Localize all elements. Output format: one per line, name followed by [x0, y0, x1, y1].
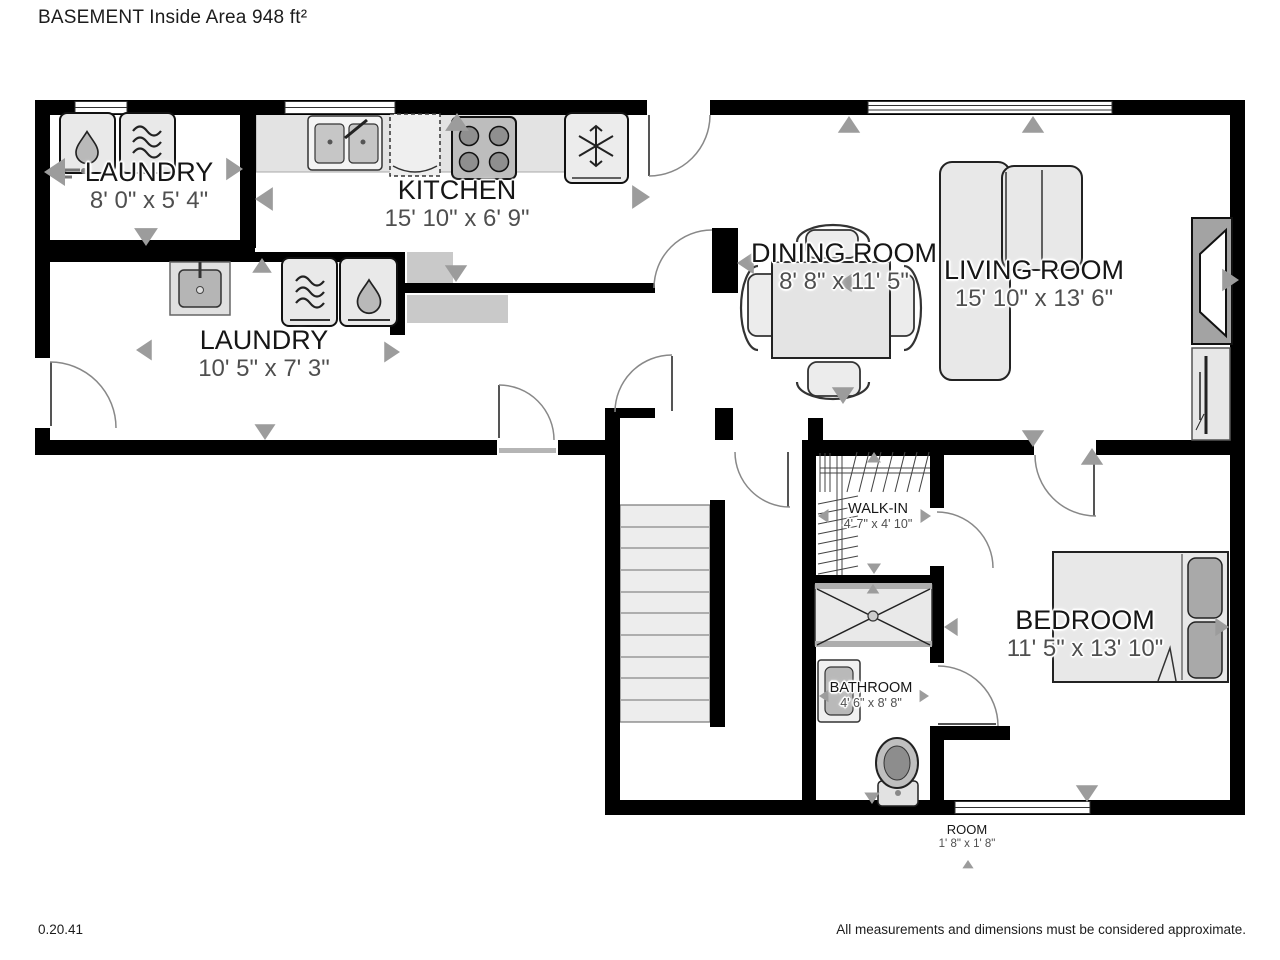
dishwasher-icon: [390, 114, 440, 176]
room-dims: 11' 5" x 13' 10": [1007, 635, 1164, 662]
room-label-bathroom: BATHROOM 4' 6" x 8' 8": [830, 681, 913, 711]
room-dims: 8' 8" x 11' 5": [751, 268, 937, 295]
room-dims: 15' 10" x 6' 9": [385, 205, 530, 232]
stairs: [620, 505, 710, 722]
kitchen-sink-icon: [308, 116, 382, 170]
room-name: BEDROOM: [1007, 606, 1164, 635]
room-name: WALK-IN: [844, 502, 913, 517]
laundry-sink-icon: [170, 262, 230, 315]
room-name: KITCHEN: [385, 176, 530, 205]
room-name: LIVING ROOM: [944, 256, 1124, 285]
tv-icon: [1192, 348, 1230, 440]
room-dims: 10' 5" x 7' 3": [198, 355, 330, 382]
room-dims: 4' 6" x 8' 8": [830, 696, 913, 711]
disclaimer-text: All measurements and dimensions must be …: [836, 922, 1246, 937]
room-label-bedroom: BEDROOM 11' 5" x 13' 10": [1007, 606, 1164, 662]
room-label-room: ROOM 1' 8" x 1' 8": [939, 823, 996, 851]
room-name: BATHROOM: [830, 681, 913, 696]
room-dims: 15' 10" x 13' 6": [944, 285, 1124, 312]
room-label-kitchen: KITCHEN 15' 10" x 6' 9": [385, 176, 530, 232]
room-dims: 4' 7" x 4' 10": [844, 517, 913, 532]
room-label-dining-room: DINING ROOM 8' 8" x 11' 5": [751, 239, 937, 295]
dryer-2-icon: [282, 258, 337, 326]
washer-2-icon: [340, 258, 397, 326]
room-name: ROOM: [939, 823, 996, 837]
room-name: LAUNDRY: [85, 158, 214, 187]
room-label-living-room: LIVING ROOM 15' 10" x 13' 6": [944, 256, 1124, 312]
room-label-laundry-1: LAUNDRY 8' 0" x 5' 4": [85, 158, 214, 214]
room-dims: 1' 8" x 1' 8": [939, 837, 996, 851]
room-dims: 8' 0" x 5' 4": [85, 187, 214, 214]
room-name: DINING ROOM: [751, 239, 937, 268]
room-label-walk-in: WALK-IN 4' 7" x 4' 10": [844, 502, 913, 532]
floorplan-drawing: [0, 0, 1280, 960]
room-name: LAUNDRY: [198, 326, 330, 355]
floorplan-page: BASEMENT Inside Area 948 ft²: [0, 0, 1280, 960]
version-text: 0.20.41: [38, 922, 83, 937]
room-label-laundry-2: LAUNDRY 10' 5" x 7' 3": [198, 326, 330, 382]
refrigerator-icon: [565, 113, 628, 183]
toilet-icon: [876, 738, 918, 806]
